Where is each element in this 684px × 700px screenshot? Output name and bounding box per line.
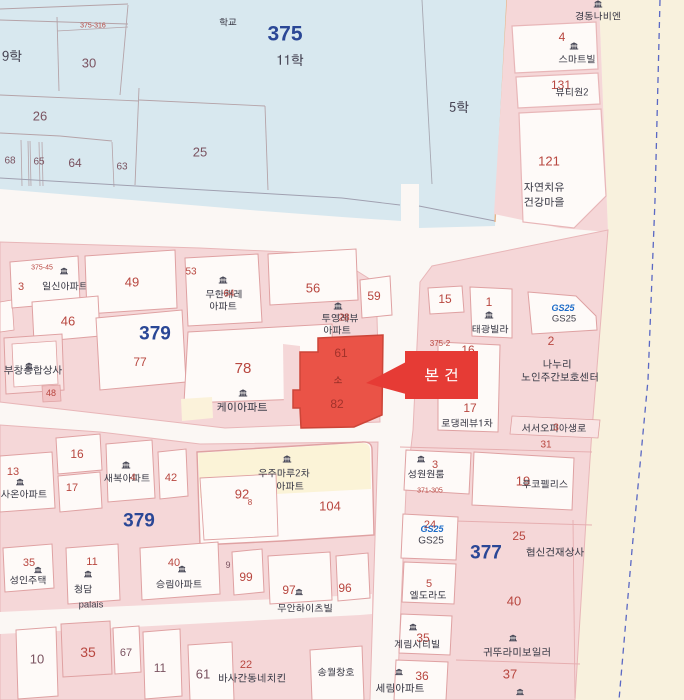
svg-text:1: 1 xyxy=(486,295,493,309)
svg-text:GS25: GS25 xyxy=(552,313,576,324)
svg-text:375-316: 375-316 xyxy=(80,22,106,29)
svg-text:68: 68 xyxy=(4,156,16,167)
svg-text:15: 15 xyxy=(438,292,452,306)
svg-text:104: 104 xyxy=(319,499,341,514)
svg-text:31: 31 xyxy=(540,440,552,451)
svg-text:26: 26 xyxy=(33,109,47,124)
svg-text:64: 64 xyxy=(223,289,235,300)
svg-text:36: 36 xyxy=(415,669,429,683)
svg-text:96: 96 xyxy=(338,581,352,595)
svg-text:palais: palais xyxy=(79,599,104,610)
svg-text:11: 11 xyxy=(86,556,97,568)
svg-text:131: 131 xyxy=(551,78,571,92)
svg-text:9: 9 xyxy=(225,560,230,570)
svg-text:379: 379 xyxy=(123,511,155,532)
svg-text:35: 35 xyxy=(80,644,96,660)
svg-text:30: 30 xyxy=(82,56,96,71)
svg-text:2: 2 xyxy=(548,334,555,348)
svg-text:22: 22 xyxy=(240,659,252,671)
svg-text:99: 99 xyxy=(239,570,253,584)
svg-text:375-2: 375-2 xyxy=(430,339,451,348)
svg-text:46: 46 xyxy=(61,314,75,329)
svg-text:11: 11 xyxy=(154,661,167,675)
svg-text:121: 121 xyxy=(538,154,560,169)
svg-text:61: 61 xyxy=(334,346,348,360)
svg-text:49: 49 xyxy=(125,275,139,290)
svg-text:42: 42 xyxy=(165,472,177,484)
svg-text:3: 3 xyxy=(432,459,438,471)
svg-text:25: 25 xyxy=(512,529,526,543)
svg-text:377: 377 xyxy=(470,543,502,564)
svg-text:28: 28 xyxy=(338,313,350,324)
svg-text:82: 82 xyxy=(330,397,344,411)
svg-text:63: 63 xyxy=(116,162,128,173)
svg-text:375: 375 xyxy=(267,22,302,45)
svg-text:77: 77 xyxy=(133,355,147,369)
svg-text:GS25: GS25 xyxy=(551,303,575,313)
svg-text:19: 19 xyxy=(516,474,530,489)
svg-text:61: 61 xyxy=(196,667,210,682)
svg-text:97: 97 xyxy=(282,583,296,597)
svg-text:371-305: 371-305 xyxy=(417,487,443,494)
svg-text:5: 5 xyxy=(426,578,432,590)
svg-text:37: 37 xyxy=(503,667,517,682)
svg-text:4: 4 xyxy=(559,30,566,44)
svg-text:53: 53 xyxy=(185,267,197,278)
svg-text:13: 13 xyxy=(7,466,19,478)
svg-text:GS25: GS25 xyxy=(418,536,444,547)
svg-text:40: 40 xyxy=(507,594,521,609)
svg-text:379: 379 xyxy=(139,324,171,345)
svg-text:375-45: 375-45 xyxy=(31,264,53,271)
svg-text:40: 40 xyxy=(168,557,180,569)
svg-text:59: 59 xyxy=(367,289,381,303)
svg-text:3: 3 xyxy=(18,281,24,293)
svg-text:64: 64 xyxy=(68,156,82,170)
svg-text:67: 67 xyxy=(120,647,132,659)
svg-text:48: 48 xyxy=(46,388,56,398)
svg-text:3: 3 xyxy=(553,423,559,434)
svg-text:78: 78 xyxy=(235,360,252,377)
svg-text:35: 35 xyxy=(23,557,35,569)
svg-text:17: 17 xyxy=(463,401,477,415)
svg-text:10: 10 xyxy=(30,652,44,667)
svg-text:GS25: GS25 xyxy=(420,524,444,534)
svg-text:16: 16 xyxy=(70,447,84,461)
svg-text:56: 56 xyxy=(306,281,320,296)
svg-text:4: 4 xyxy=(130,473,136,484)
svg-text:65: 65 xyxy=(33,157,45,168)
svg-text:8: 8 xyxy=(248,498,253,507)
svg-text:25: 25 xyxy=(193,145,207,160)
svg-text:17: 17 xyxy=(66,482,78,494)
